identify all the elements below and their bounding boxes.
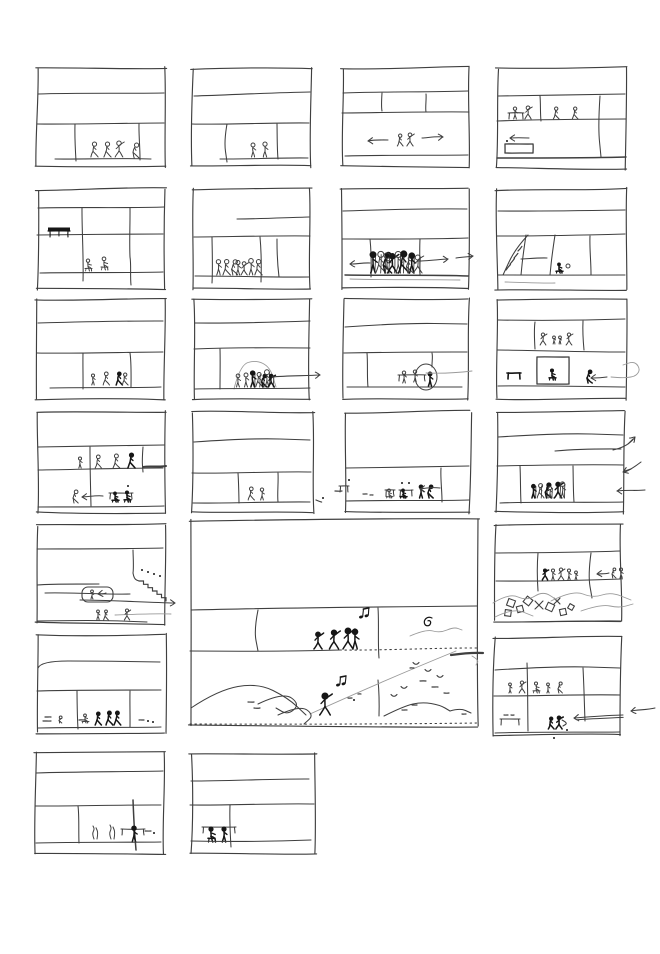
panel-drawing	[492, 635, 623, 737]
storyboard-panel-r7c1	[33, 750, 166, 855]
storyboard-panel-r3c3	[342, 297, 470, 401]
storyboard-panel-r5c2	[188, 518, 480, 728]
panel-drawing	[343, 410, 472, 514]
panel-drawing	[495, 297, 628, 401]
storyboard-panel-r2c1	[35, 187, 167, 291]
panel-drawing	[340, 66, 470, 168]
storyboard-panel-r2c3	[340, 187, 470, 291]
storyboard-panel-r5c1	[35, 523, 167, 625]
storyboard-panel-r4c3	[343, 410, 472, 514]
panel-drawing	[188, 518, 480, 728]
panel-drawing	[495, 410, 626, 514]
storyboard-panel-r4c1	[35, 410, 167, 514]
panel-drawing	[35, 523, 167, 625]
storyboard-panel-r3c1	[35, 297, 167, 401]
storyboard-panel-r4c4	[495, 410, 626, 514]
storyboard-panel-r3c4	[495, 297, 628, 401]
storyboard-panel-r7c2	[188, 752, 317, 855]
panel-drawing	[340, 187, 470, 291]
storyboard-panel-r1c4	[495, 66, 628, 170]
panel-drawing	[190, 66, 312, 168]
storyboard-panel-r6c1	[35, 633, 167, 735]
panel-drawing	[342, 297, 470, 401]
panel-drawing	[493, 523, 623, 623]
storyboard-panel-r1c1	[35, 66, 167, 168]
panel-drawing	[35, 66, 167, 168]
panel-drawing	[192, 187, 312, 291]
storyboard-panel-r5c3	[493, 523, 623, 623]
storyboard-panel-r3c2	[192, 297, 312, 401]
storyboard-panel-r4c2	[190, 410, 315, 514]
panel-drawing	[188, 752, 317, 855]
storyboard-panel-r6c2	[492, 635, 623, 737]
panel-drawing	[35, 297, 167, 401]
storyboard-panel-r2c2	[192, 187, 312, 291]
panel-drawing	[33, 750, 166, 855]
panel-drawing	[35, 633, 167, 735]
storyboard-panel-r2c4	[495, 187, 628, 291]
storyboard-panel-r1c3	[340, 66, 470, 168]
sketch-sheet	[0, 0, 660, 954]
panel-drawing	[495, 66, 628, 170]
panel-drawing	[495, 187, 628, 291]
storyboard-panel-r1c2	[190, 66, 312, 168]
panel-drawing	[192, 297, 312, 401]
panel-drawing	[35, 187, 167, 291]
panel-drawing	[35, 410, 167, 514]
panel-drawing	[190, 410, 315, 514]
